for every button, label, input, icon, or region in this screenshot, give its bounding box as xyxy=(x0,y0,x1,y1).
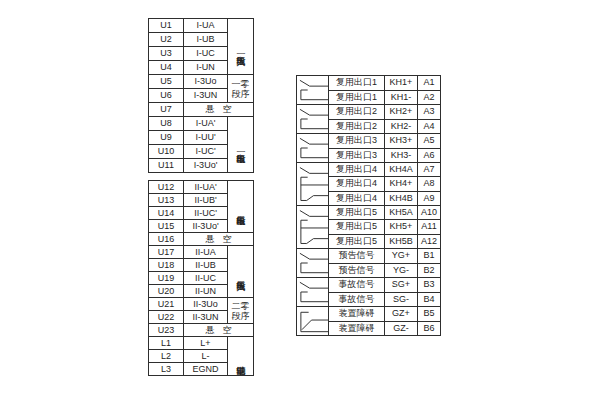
table-row: 装置障碍GZ+B5 xyxy=(297,307,441,322)
pin-id-cell: A9 xyxy=(418,191,441,205)
terminal-id-cell: L2 xyxy=(149,350,184,363)
terminal-id-cell: L3 xyxy=(149,363,184,376)
terminal-id-cell: U13 xyxy=(149,194,184,207)
group-label-line: 段序 xyxy=(228,311,253,321)
group-label-cell: 一段电压输出 xyxy=(228,117,254,173)
signal-name-cell: I-UA xyxy=(184,19,228,33)
group-label-line: 段序 xyxy=(228,89,253,99)
pin-id-cell: A8 xyxy=(418,177,441,191)
table-row: 事故信号SG+B3 xyxy=(297,278,441,293)
terminal-name-cell: KH3+ xyxy=(385,134,418,149)
group-label-cell: 二段电压输入 xyxy=(228,246,254,298)
signal-name-cell: I-UN xyxy=(184,61,228,75)
group-label-cell: 一段电压输入 xyxy=(228,19,254,75)
terminal-id-cell: L1 xyxy=(149,337,184,350)
table-row: 复用出口1KH1+A1 xyxy=(297,76,441,91)
terminal-id-cell: U11 xyxy=(149,159,184,173)
table-row: 复用出口4KH4AA7 xyxy=(297,163,441,177)
terminal-id-cell: U17 xyxy=(149,246,184,259)
output-contact-table: 复用出口1KH1+A1复用出口1KH1-A2复用出口2KH2+A3复用出口2KH… xyxy=(296,75,441,336)
pin-id-cell: A2 xyxy=(418,90,441,105)
output-function-label-cell: 复用出口3 xyxy=(329,134,385,149)
output-function-label-cell: 复用出口4 xyxy=(329,163,385,177)
pin-id-cell: B6 xyxy=(418,321,441,336)
no-contact-icon xyxy=(297,249,329,278)
group-label-cell: 辅助电源 xyxy=(228,337,254,376)
pin-id-cell: A5 xyxy=(418,134,441,149)
terminal-name-cell: YG- xyxy=(385,263,418,278)
terminal-id-cell: U20 xyxy=(149,285,184,298)
pin-id-cell: B4 xyxy=(418,292,441,307)
table-row: U21II-3Uo二零段序 xyxy=(149,298,254,311)
signal-name-cell: II-UC' xyxy=(184,207,228,220)
float-terminal-cell: 悬空 xyxy=(184,103,254,117)
terminal-name-cell: KH4+ xyxy=(385,177,418,191)
signal-name-cell: I-UA' xyxy=(184,117,228,131)
table-row: 复用出口2KH2+A3 xyxy=(297,105,441,120)
output-function-label-cell: 装置障碍 xyxy=(329,307,385,322)
table-row: U12II-UA'二段电压输出 xyxy=(149,181,254,194)
no-contact-icon xyxy=(297,76,329,105)
terminal-name-cell: KH3- xyxy=(385,148,418,163)
table-row: U17II-UA二段电压输入 xyxy=(149,246,254,259)
terminal-id-cell: U7 xyxy=(149,103,184,117)
wiring-diagram-canvas: { "colors": { "line": "#2e2e2e", "backgr… xyxy=(0,0,600,400)
table-row: U16悬空 xyxy=(149,233,254,246)
table-row: U7悬空 xyxy=(149,103,254,117)
output-function-label-cell: 复用出口5 xyxy=(329,206,385,220)
voltage-terminal-block-2: U12II-UA'二段电压输出U13II-UB'U14II-UC'U15II-3… xyxy=(148,180,254,376)
terminal-name-cell: GZ- xyxy=(385,321,418,336)
signal-name-cell: I-UC' xyxy=(184,145,228,159)
pin-id-cell: A6 xyxy=(418,148,441,163)
output-function-label-cell: 复用出口2 xyxy=(329,119,385,134)
output-function-label-cell: 复用出口3 xyxy=(329,148,385,163)
terminal-id-cell: U21 xyxy=(149,298,184,311)
left-terminal-block-2-container: U12II-UA'二段电压输出U13II-UB'U14II-UC'U15II-3… xyxy=(148,180,254,376)
signal-name-cell: I-UB xyxy=(184,33,228,47)
output-function-label-cell: 复用出口5 xyxy=(329,220,385,234)
signal-name-cell: II-UA xyxy=(184,246,228,259)
output-function-label-cell: 事故信号 xyxy=(329,292,385,307)
pin-id-cell: A3 xyxy=(418,105,441,120)
float-terminal-cell: 悬空 xyxy=(184,233,254,246)
left-terminal-block-1-container: U1I-UA一段电压输入U2I-UBU3I-UCU4I-UNU5I-3Uo一零段… xyxy=(148,18,254,173)
terminal-id-cell: U12 xyxy=(149,181,184,194)
terminal-id-cell: U14 xyxy=(149,207,184,220)
terminal-name-cell: GZ+ xyxy=(385,307,418,322)
terminal-id-cell: U3 xyxy=(149,47,184,61)
terminal-id-cell: U18 xyxy=(149,259,184,272)
terminal-id-cell: U22 xyxy=(149,311,184,324)
float-terminal-cell: 悬空 xyxy=(184,324,254,337)
terminal-name-cell: SG- xyxy=(385,292,418,307)
output-function-label-cell: 预告信号 xyxy=(329,249,385,264)
terminal-id-cell: U1 xyxy=(149,19,184,33)
terminal-name-cell: KH5A xyxy=(385,206,418,220)
terminal-name-cell: KH2- xyxy=(385,119,418,134)
pin-id-cell: B3 xyxy=(418,278,441,293)
table-row: U8I-UA'一段电压输出 xyxy=(149,117,254,131)
terminal-id-cell: U23 xyxy=(149,324,184,337)
pin-id-cell: B2 xyxy=(418,263,441,278)
terminal-id-cell: U4 xyxy=(149,61,184,75)
changeover-contact-icon xyxy=(297,206,329,249)
signal-name-cell: I-3Uo' xyxy=(184,159,228,173)
terminal-id-cell: U9 xyxy=(149,131,184,145)
output-function-label-cell: 预告信号 xyxy=(329,263,385,278)
terminal-name-cell: KH5+ xyxy=(385,220,418,234)
terminal-id-cell: U15 xyxy=(149,220,184,233)
no-contact-icon xyxy=(297,278,329,307)
terminal-name-cell: KH4B xyxy=(385,191,418,205)
nc-contact-icon xyxy=(297,307,329,336)
pin-id-cell: A10 xyxy=(418,206,441,220)
terminal-id-cell: U2 xyxy=(149,33,184,47)
voltage-terminal-block-1: U1I-UA一段电压输入U2I-UBU3I-UCU4I-UNU5I-3Uo一零段… xyxy=(148,18,254,173)
table-row: 预告信号YG+B1 xyxy=(297,249,441,264)
pin-id-cell: A7 xyxy=(418,163,441,177)
output-function-label-cell: 复用出口4 xyxy=(329,177,385,191)
signal-name-cell: L+ xyxy=(184,337,228,350)
pin-id-cell: A1 xyxy=(418,76,441,91)
pin-id-cell: A11 xyxy=(418,220,441,234)
output-contact-table-container: 复用出口1KH1+A1复用出口1KH1-A2复用出口2KH2+A3复用出口2KH… xyxy=(296,75,441,336)
group-label-line: 一零 xyxy=(228,79,253,89)
group-label-cell: 二零段序 xyxy=(228,298,254,324)
table-row: 复用出口3KH3+A5 xyxy=(297,134,441,149)
no-contact-icon xyxy=(297,105,329,134)
signal-name-cell: II-UB xyxy=(184,259,228,272)
signal-name-cell: II-UA' xyxy=(184,181,228,194)
terminal-id-cell: U10 xyxy=(149,145,184,159)
table-row: U23悬空 xyxy=(149,324,254,337)
output-function-label-cell: 复用出口5 xyxy=(329,234,385,248)
output-function-label-cell: 装置障碍 xyxy=(329,321,385,336)
pin-id-cell: A4 xyxy=(418,119,441,134)
changeover-contact-icon xyxy=(297,163,329,206)
terminal-name-cell: KH5B xyxy=(385,234,418,248)
terminal-id-cell: U19 xyxy=(149,272,184,285)
table-row: L1L+辅助电源 xyxy=(149,337,254,350)
output-function-label-cell: 复用出口4 xyxy=(329,191,385,205)
terminal-name-cell: KH2+ xyxy=(385,105,418,120)
signal-name-cell: I-3UN xyxy=(184,89,228,103)
table-row: 复用出口5KH5AA10 xyxy=(297,206,441,220)
terminal-name-cell: SG+ xyxy=(385,278,418,293)
group-label-cell: 一零段序 xyxy=(228,75,254,103)
terminal-name-cell: YG+ xyxy=(385,249,418,264)
signal-name-cell: I-UC xyxy=(184,47,228,61)
signal-name-cell: II-3UN xyxy=(184,311,228,324)
signal-name-cell: II-3Uo xyxy=(184,298,228,311)
table-row: U1I-UA一段电压输入 xyxy=(149,19,254,33)
signal-name-cell: II-3Uo' xyxy=(184,220,228,233)
signal-name-cell: I-3Uo xyxy=(184,75,228,89)
output-function-label-cell: 复用出口2 xyxy=(329,105,385,120)
terminal-id-cell: U5 xyxy=(149,75,184,89)
output-function-label-cell: 复用出口1 xyxy=(329,90,385,105)
output-function-label-cell: 事故信号 xyxy=(329,278,385,293)
signal-name-cell: II-UB' xyxy=(184,194,228,207)
pin-id-cell: B5 xyxy=(418,307,441,322)
terminal-id-cell: U6 xyxy=(149,89,184,103)
pin-id-cell: B1 xyxy=(418,249,441,264)
signal-name-cell: II-UN xyxy=(184,285,228,298)
terminal-id-cell: U8 xyxy=(149,117,184,131)
signal-name-cell: II-UC xyxy=(184,272,228,285)
signal-name-cell: EGND xyxy=(184,363,228,376)
terminal-name-cell: KH4A xyxy=(385,163,418,177)
terminal-name-cell: KH1+ xyxy=(385,76,418,91)
group-label-cell: 二段电压输出 xyxy=(228,181,254,233)
group-label-line: 二零 xyxy=(228,301,253,311)
signal-name-cell: I-UU' xyxy=(184,131,228,145)
terminal-id-cell: U16 xyxy=(149,233,184,246)
signal-name-cell: L- xyxy=(184,350,228,363)
no-contact-icon xyxy=(297,134,329,163)
pin-id-cell: A12 xyxy=(418,234,441,248)
output-function-label-cell: 复用出口1 xyxy=(329,76,385,91)
terminal-name-cell: KH1- xyxy=(385,90,418,105)
table-row: U5I-3Uo一零段序 xyxy=(149,75,254,89)
